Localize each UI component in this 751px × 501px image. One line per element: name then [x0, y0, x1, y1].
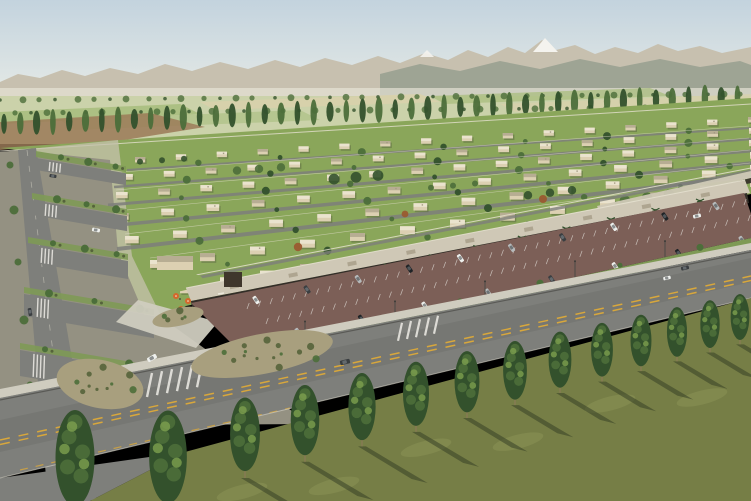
island-shrub	[222, 350, 227, 355]
canopy-highlight	[172, 458, 182, 468]
canopy-clump	[305, 410, 316, 421]
island-shrub	[183, 315, 186, 318]
distant-tree	[187, 110, 191, 114]
villa-roof	[207, 204, 220, 207]
island-shrub	[297, 349, 302, 354]
yard-tree	[274, 207, 279, 212]
canopy-highlight	[712, 324, 717, 329]
median-shrub	[63, 200, 66, 203]
canopy-highlight	[462, 358, 469, 365]
crosswalk-stripe	[44, 299, 45, 318]
canopy-highlight	[505, 362, 511, 368]
light-head	[304, 320, 306, 322]
island-shrub	[176, 307, 183, 314]
canopy-highlight	[510, 348, 516, 354]
villa-roof	[478, 178, 491, 181]
canopy-clump	[294, 421, 305, 432]
residential-tree	[524, 191, 532, 199]
yard-tree	[515, 166, 523, 174]
canopy-clump	[466, 388, 476, 398]
poplar-tree	[522, 94, 529, 114]
poplar-tree	[408, 98, 414, 120]
yard-tree	[518, 152, 524, 158]
yard-tree	[602, 147, 607, 152]
rooftop-unit	[459, 221, 460, 222]
boulevard-tree	[10, 206, 19, 215]
villa-roof	[702, 170, 716, 174]
villa-roof	[350, 233, 365, 237]
villa-roof	[707, 143, 719, 146]
canopy-clump	[560, 352, 569, 361]
villa-roof	[585, 128, 595, 131]
villa-roof	[569, 169, 582, 172]
villa-roof	[411, 168, 423, 171]
yard-tree	[183, 176, 191, 184]
light-head	[394, 300, 396, 302]
villa-roof	[285, 178, 297, 181]
canopy-highlight	[633, 333, 639, 339]
distant-tree	[36, 97, 41, 102]
villa-roof	[217, 152, 227, 155]
canopy-clump	[168, 444, 183, 459]
canopy-clump	[406, 395, 416, 405]
villa-roof	[415, 153, 426, 156]
distant-tree	[29, 111, 33, 115]
poplar-tree	[229, 103, 236, 127]
poplar-tree	[375, 97, 382, 123]
poplar-tree	[344, 100, 350, 122]
distant-tree	[596, 93, 600, 97]
villa-roof	[614, 165, 627, 168]
yard-tree	[196, 237, 204, 245]
canopy-clump	[709, 329, 716, 336]
distant-tree	[335, 108, 340, 113]
villa-roof	[250, 247, 265, 251]
rooftop-unit	[545, 158, 546, 159]
villa-roof	[654, 176, 668, 180]
canopy-highlight	[597, 329, 603, 335]
villa-roof	[297, 196, 310, 199]
canopy-clump	[601, 356, 609, 364]
distant-tree	[431, 95, 435, 99]
distant-tree	[53, 98, 57, 102]
distant-tree	[328, 96, 332, 100]
canopy-highlight	[702, 317, 707, 322]
villa-roof	[258, 149, 268, 152]
canopy-clump	[602, 342, 610, 350]
residential-tree	[329, 174, 340, 185]
island-shrub	[231, 358, 236, 363]
distant-tree	[627, 92, 632, 97]
median-shrub	[55, 294, 58, 297]
median-tree	[58, 154, 64, 160]
poplar-tree	[1, 114, 7, 134]
villa-roof	[125, 236, 139, 240]
crosswalk-stripe	[48, 249, 49, 264]
island-shrub	[243, 354, 246, 357]
canopy-clump	[641, 333, 649, 341]
canopy-clump	[640, 346, 648, 354]
canopy-highlight	[604, 350, 610, 356]
canopy-highlight	[637, 321, 643, 327]
canopy-highlight	[160, 421, 170, 431]
crosswalk-stripe	[40, 355, 41, 378]
villa-roof	[373, 156, 384, 159]
residential-tree	[159, 157, 165, 163]
poplar-tree	[539, 93, 545, 115]
light-head	[574, 260, 576, 262]
median-tree	[114, 251, 120, 257]
villa-roof	[540, 143, 551, 146]
canopy-highlight	[405, 384, 412, 391]
villa-roof	[462, 136, 472, 139]
distant-tree	[517, 107, 521, 111]
verge-shrub	[697, 244, 704, 251]
villa-roof	[252, 200, 265, 203]
villa-roof	[243, 182, 255, 185]
poplar-tree	[457, 97, 463, 117]
distant-tree	[163, 97, 167, 101]
distant-tree	[139, 110, 143, 114]
canopy-highlight	[365, 407, 372, 414]
villa-roof	[331, 159, 342, 162]
canopy-highlight	[732, 310, 737, 315]
canopy-clump	[155, 429, 170, 444]
canopy-highlight	[308, 421, 316, 429]
russet-tree	[539, 195, 547, 203]
distant-tree	[178, 95, 185, 102]
distant-tree	[548, 106, 553, 111]
canopy-highlight	[239, 406, 247, 414]
island-shrub	[255, 357, 258, 360]
poplar-tree	[326, 102, 333, 122]
crosswalk-stripe	[41, 248, 42, 263]
crosswalk-stripe	[45, 248, 46, 263]
canopy-clump	[407, 375, 417, 385]
villa-roof	[317, 214, 331, 218]
canopy-clump	[353, 387, 363, 397]
canopy-clump	[60, 460, 75, 475]
poplar-tree	[148, 107, 154, 129]
villa-roof	[666, 122, 676, 125]
villa-roof	[300, 240, 315, 244]
island-shrub	[307, 343, 314, 350]
villa-roof	[454, 164, 466, 167]
rooftop-unit	[614, 182, 615, 183]
white-sign	[218, 293, 224, 294]
yard-tree	[363, 197, 371, 205]
villa-roof	[659, 161, 672, 164]
canopy-clump	[234, 435, 246, 447]
canopy-highlight	[299, 393, 307, 401]
verge-shrub	[618, 263, 623, 268]
median-tree	[112, 205, 120, 213]
island-shrub	[110, 382, 113, 385]
russet-tree	[402, 211, 409, 218]
median-tree	[42, 346, 48, 352]
canopy-highlight	[593, 342, 599, 348]
island-shrub	[181, 317, 184, 320]
median-shrub	[92, 205, 95, 208]
yard-tree	[292, 227, 298, 233]
canopy-clump	[467, 373, 477, 383]
yard-tree	[225, 262, 230, 267]
crosswalk-stripe	[60, 164, 61, 173]
distant-tree	[146, 96, 151, 101]
median-shrub	[90, 249, 93, 252]
rooftop-unit	[422, 204, 423, 205]
crosswalk-stripe	[52, 205, 53, 217]
distant-tree	[123, 96, 130, 103]
canopy-clump	[734, 303, 741, 310]
poplar-tree	[99, 108, 105, 132]
villa-roof	[707, 120, 717, 123]
yard-tree	[432, 175, 437, 180]
canopy-highlight	[562, 360, 568, 366]
cafe-table	[179, 298, 181, 300]
villa-roof	[421, 138, 431, 141]
island-shrub	[80, 389, 85, 394]
rooftop-unit	[713, 121, 714, 122]
rooftop-unit	[550, 131, 551, 132]
median-shrub	[122, 255, 125, 258]
canopy-clump	[677, 325, 685, 333]
island-shrub	[88, 385, 91, 388]
distant-tree	[44, 109, 51, 116]
yard-tree	[635, 171, 643, 179]
scene-canvas	[0, 0, 751, 501]
canopy-highlight	[679, 332, 684, 337]
island-shrub	[87, 371, 92, 376]
canopy-clump	[506, 371, 515, 380]
distant-tree	[532, 105, 539, 112]
canopy-clump	[235, 412, 247, 424]
rooftop-unit	[714, 144, 715, 145]
canopy-clump	[551, 361, 560, 370]
canopy-clump	[507, 353, 516, 362]
canopy-clump	[415, 401, 425, 411]
residential-tree	[277, 163, 285, 171]
umbrella-tip	[175, 295, 177, 297]
villa-roof	[164, 171, 175, 174]
distant-tree	[469, 94, 474, 99]
distant-tree	[91, 97, 96, 102]
rooftop-unit	[714, 132, 715, 133]
canopy-highlight	[410, 369, 417, 376]
distant-tree	[343, 94, 350, 101]
distant-tree	[398, 93, 405, 100]
yard-tree	[347, 181, 353, 187]
distant-tree	[352, 108, 356, 112]
canopy-highlight	[153, 443, 163, 453]
yard-tree	[455, 189, 461, 195]
island-shrub	[162, 314, 167, 319]
island-shrub	[276, 364, 283, 371]
villa-roof	[221, 225, 235, 229]
villa-roof	[496, 161, 508, 164]
median-shrub	[94, 162, 97, 165]
island-shrub	[242, 343, 247, 348]
island-shrub	[126, 371, 133, 378]
median-tree	[45, 289, 53, 297]
boulevard-tree	[7, 162, 14, 169]
residential-tree	[181, 156, 187, 162]
yard-tree	[262, 187, 270, 195]
distant-tree	[273, 96, 277, 100]
poplar-tree	[180, 104, 187, 130]
villa-roof	[116, 192, 128, 195]
rooftop-unit	[229, 226, 230, 227]
residential-tree	[546, 189, 554, 197]
canopy-clump	[670, 317, 678, 325]
canopy-highlight	[419, 394, 426, 401]
island-shrub	[244, 350, 247, 353]
villa-roof	[413, 203, 427, 207]
residential-tree	[428, 185, 434, 191]
yard-tree	[195, 160, 201, 166]
canopy-clump	[710, 317, 717, 324]
island-shrub	[74, 379, 79, 384]
villa-roof	[498, 146, 509, 149]
villa-roof	[433, 183, 446, 186]
canopy-highlight	[356, 381, 363, 388]
crosswalk-stripe	[53, 162, 54, 171]
poplar-tree	[441, 94, 447, 120]
crosswalk-stripe	[37, 298, 38, 317]
villa-roof	[400, 226, 415, 230]
distant-tree	[304, 95, 309, 100]
canopy-highlight	[79, 459, 90, 470]
rooftop-unit	[214, 205, 215, 206]
island-shrub	[106, 387, 109, 390]
canopy-highlight	[351, 397, 358, 404]
poplar-tree	[164, 106, 170, 130]
median-tree	[113, 164, 119, 170]
canopy-clump	[74, 469, 89, 484]
canopy-highlight	[233, 423, 241, 431]
median-shrub	[67, 158, 70, 161]
canopy-clump	[634, 325, 642, 333]
architectural-rendering	[0, 0, 751, 501]
canopy-highlight	[742, 317, 747, 322]
median-tree	[50, 240, 56, 246]
distant-tree	[288, 94, 295, 101]
light-head	[484, 280, 486, 282]
umbrella-tip	[187, 300, 189, 302]
poplar-tree	[392, 99, 398, 119]
residential-tree	[568, 186, 576, 194]
canopy-highlight	[469, 382, 476, 389]
residential-tree	[450, 183, 456, 189]
median-shrub	[122, 210, 125, 213]
villa-roof	[665, 134, 676, 137]
poplar-tree	[295, 101, 301, 125]
villa-roof	[456, 149, 467, 152]
poplar-tree	[311, 99, 317, 125]
rooftop-unit	[207, 186, 208, 187]
villa-roof	[342, 191, 355, 194]
villa-roof	[524, 174, 537, 177]
median-tree	[53, 195, 61, 203]
canopy-clump	[244, 442, 256, 454]
canopy-clump	[594, 351, 602, 359]
median-shrub	[121, 167, 124, 170]
canopy-clump	[739, 322, 746, 329]
villa-roof	[503, 133, 513, 136]
median-shrub	[59, 244, 62, 247]
yard-tree	[546, 181, 551, 186]
crosswalk-stripe	[44, 356, 45, 379]
villa-roof	[298, 146, 308, 149]
residential-tree	[351, 172, 362, 183]
canopy-highlight	[706, 306, 711, 311]
canopy-highlight	[293, 410, 301, 418]
island-shrub	[263, 336, 270, 343]
island-shrub	[276, 343, 281, 348]
median-tree	[81, 245, 89, 253]
rooftop-unit	[379, 157, 380, 158]
median-tree	[84, 158, 92, 166]
villa-roof	[339, 144, 349, 147]
crosswalk-stripe	[37, 354, 38, 377]
residential-tree	[472, 180, 478, 186]
residential-tree	[373, 170, 384, 181]
villa-roof	[606, 181, 620, 185]
villa-roof	[206, 168, 217, 171]
villa-roof	[462, 198, 476, 202]
distant-tree	[201, 96, 206, 101]
median-shrub	[51, 350, 54, 353]
canopy-clump	[733, 318, 740, 325]
boulevard-tree	[15, 259, 22, 266]
villa-roof	[582, 140, 593, 143]
distant-tree	[12, 110, 17, 115]
canopy-highlight	[248, 435, 256, 443]
residential-tree	[255, 165, 263, 173]
island-shrub	[95, 388, 98, 391]
distant-tree	[60, 110, 65, 115]
canopy-clump	[167, 467, 182, 482]
canopy-highlight	[457, 373, 464, 380]
villa-roof	[200, 253, 215, 257]
median-tree	[91, 298, 97, 304]
poplar-tree	[262, 104, 268, 124]
villa-roof	[510, 192, 524, 196]
crosswalk-stripe	[49, 204, 50, 216]
canopy-highlight	[517, 371, 523, 377]
villa-roof	[580, 154, 592, 157]
median-shrub	[100, 301, 103, 304]
poplar-tree	[359, 98, 365, 122]
distant-tree	[611, 92, 618, 99]
canopy-clump	[552, 343, 561, 352]
rooftop-unit	[223, 153, 224, 154]
canopy-clump	[703, 325, 710, 332]
villa-roof	[380, 141, 390, 144]
canopy-clump	[295, 399, 306, 410]
poplar-tree	[197, 107, 203, 127]
canopy-clump	[633, 341, 641, 349]
canopy-clump	[703, 310, 710, 317]
villa-roof	[665, 147, 677, 150]
poplar-tree	[473, 95, 480, 117]
canopy-clump	[75, 445, 90, 460]
villa-roof	[705, 156, 718, 159]
crosswalk-stripe	[56, 163, 57, 172]
canopy-highlight	[59, 444, 70, 455]
residential-tree	[137, 159, 143, 165]
distant-tree	[20, 96, 27, 103]
